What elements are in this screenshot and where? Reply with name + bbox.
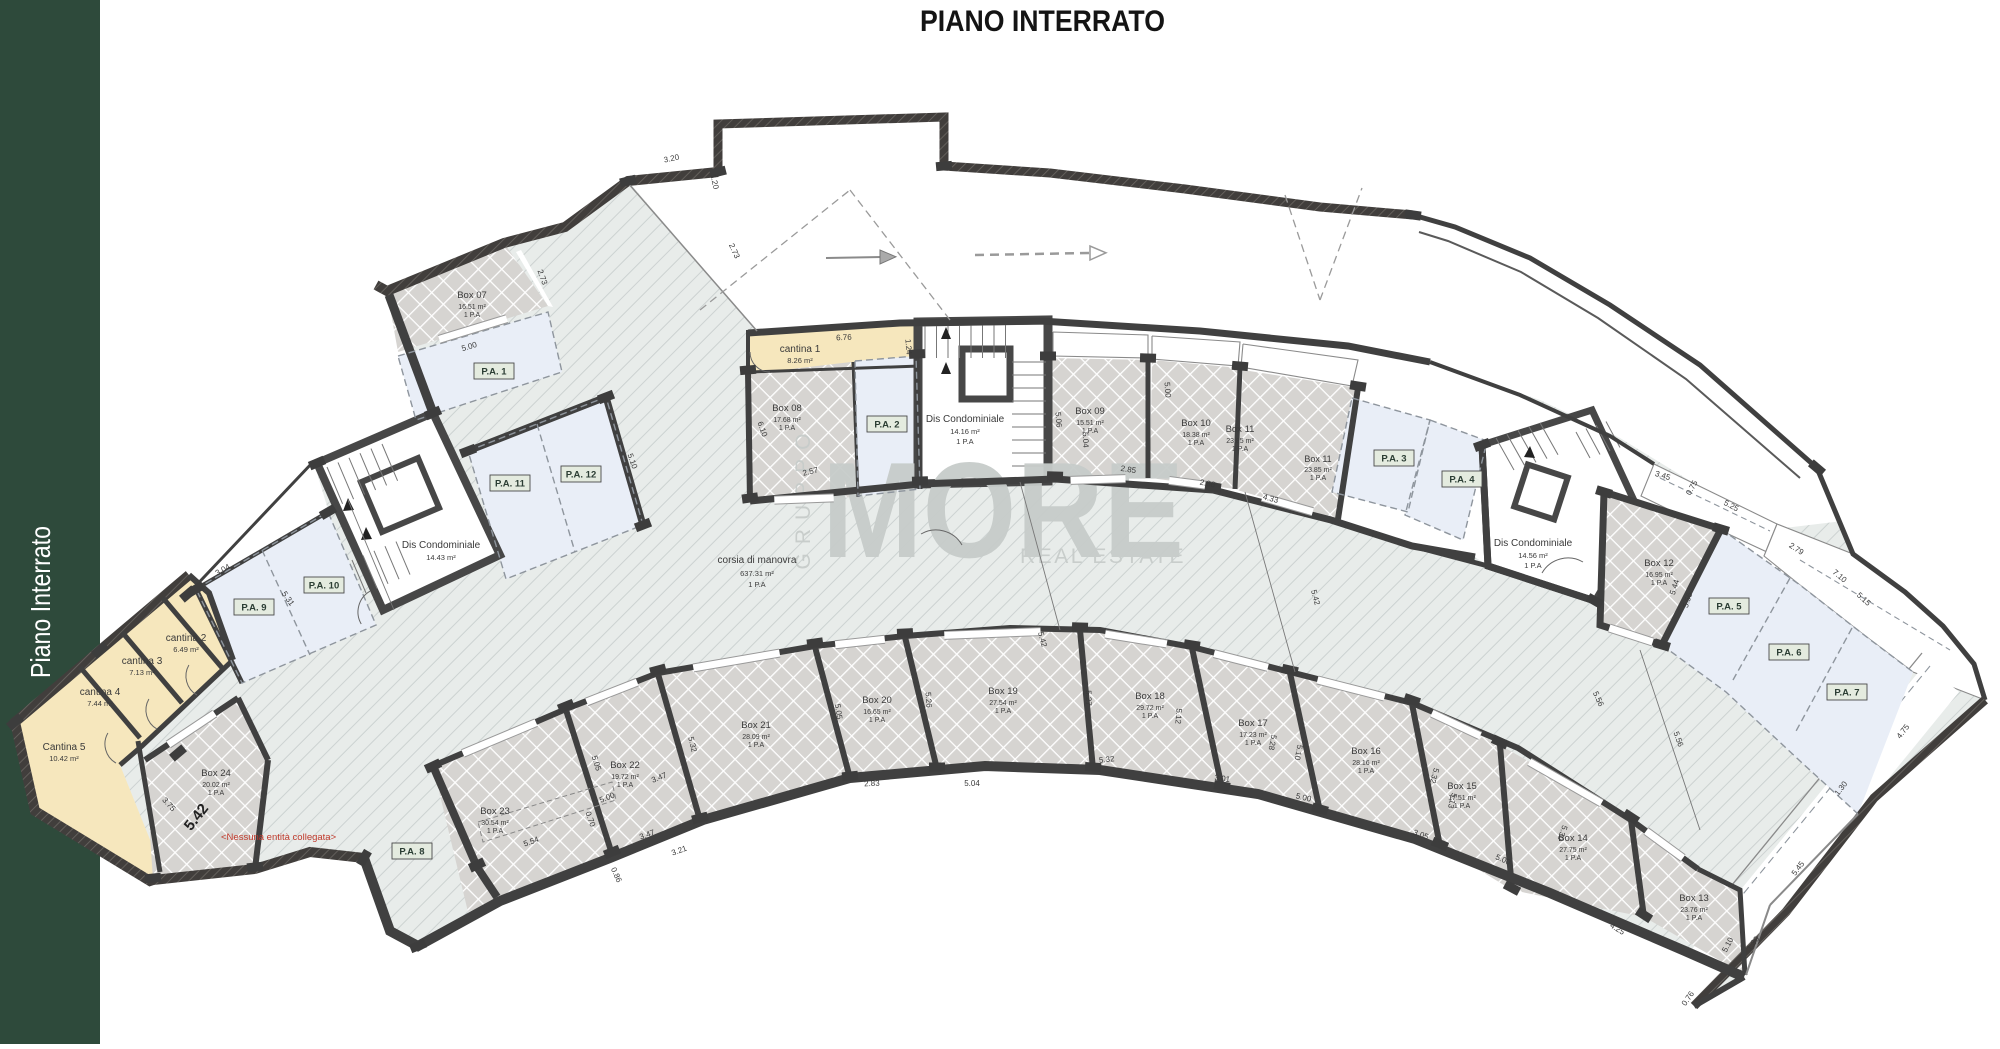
- svg-text:5.27: 5.27: [1084, 690, 1093, 706]
- svg-text:1 P.A: 1 P.A: [1651, 580, 1668, 587]
- svg-text:Box 12: Box 12: [1644, 558, 1674, 569]
- svg-text:1 P.A: 1 P.A: [956, 437, 973, 446]
- svg-text:5.06: 5.06: [1053, 412, 1063, 429]
- svg-text:1 P.A: 1 P.A: [748, 742, 765, 749]
- svg-text:Box 18: Box 18: [1135, 691, 1165, 702]
- svg-text:14.43 m²: 14.43 m²: [426, 553, 456, 562]
- svg-text:1 P.A: 1 P.A: [1524, 561, 1541, 570]
- svg-text:P.A. 11: P.A. 11: [495, 479, 526, 490]
- svg-text:Box 08: Box 08: [772, 403, 802, 414]
- svg-text:16.51 m²: 16.51 m²: [458, 304, 486, 311]
- svg-text:1 P.A: 1 P.A: [487, 828, 504, 835]
- svg-text:Box 16: Box 16: [1351, 746, 1381, 757]
- svg-text:7.44 m²: 7.44 m²: [87, 699, 113, 708]
- svg-text:8.26 m²: 8.26 m²: [787, 356, 813, 365]
- svg-text:23.76 m²: 23.76 m²: [1680, 907, 1708, 914]
- svg-text:P.A. 12: P.A. 12: [566, 470, 596, 481]
- svg-text:1 P.A: 1 P.A: [1358, 768, 1375, 775]
- svg-text:637.31 m²: 637.31 m²: [740, 569, 774, 578]
- svg-text:16.65 m²: 16.65 m²: [863, 709, 891, 716]
- svg-text:cantina 2: cantina 2: [166, 633, 207, 644]
- svg-text:PIANO INTERRATO: PIANO INTERRATO: [920, 5, 1165, 38]
- svg-text:15.51 m²: 15.51 m²: [1076, 420, 1104, 427]
- svg-text:Box 24: Box 24: [201, 768, 231, 779]
- svg-text:27.75 m²: 27.75 m²: [1559, 847, 1587, 854]
- svg-text:6.76: 6.76: [836, 333, 853, 343]
- svg-text:14.56 m²: 14.56 m²: [1518, 551, 1548, 560]
- svg-text:P.A. 3: P.A. 3: [1381, 454, 1406, 465]
- svg-text:1 P.A: 1 P.A: [779, 425, 796, 432]
- svg-text:1 P.A: 1 P.A: [1310, 475, 1327, 482]
- svg-text:Dis Condominiale: Dis Condominiale: [402, 540, 481, 551]
- svg-text:10.42 m²: 10.42 m²: [49, 754, 79, 763]
- svg-text:1.24: 1.24: [903, 339, 913, 356]
- svg-text:2.83: 2.83: [864, 779, 881, 789]
- svg-text:1 P.A: 1 P.A: [464, 312, 481, 319]
- svg-text:1 P.A: 1 P.A: [995, 708, 1012, 715]
- svg-text:17.23 m²: 17.23 m²: [1239, 732, 1267, 739]
- svg-text:28.16 m²: 28.16 m²: [1352, 760, 1380, 767]
- svg-text:Box 11: Box 11: [1304, 454, 1331, 464]
- svg-text:18.38 m²: 18.38 m²: [1182, 432, 1210, 439]
- svg-text:P.A. 5: P.A. 5: [1716, 602, 1742, 613]
- svg-text:cantina 1: cantina 1: [780, 344, 821, 355]
- svg-text:27.54 m²: 27.54 m²: [989, 700, 1017, 707]
- svg-text:cantina 3: cantina 3: [122, 656, 163, 667]
- svg-text:1 P.A: 1 P.A: [1142, 713, 1159, 720]
- svg-text:5.00: 5.00: [1162, 382, 1172, 399]
- svg-text:6.49 m²: 6.49 m²: [173, 645, 199, 654]
- svg-text:23.85 m²: 23.85 m²: [1226, 438, 1254, 445]
- svg-text:5.32: 5.32: [1099, 754, 1116, 765]
- svg-text:Box 22: Box 22: [610, 760, 640, 771]
- svg-text:7.13 m²: 7.13 m²: [129, 668, 155, 677]
- svg-text:P.A. 1: P.A. 1: [481, 367, 507, 378]
- svg-text:Box 19: Box 19: [988, 686, 1018, 697]
- svg-text:Box 23: Box 23: [480, 806, 510, 817]
- svg-text:Box 09: Box 09: [1075, 406, 1105, 417]
- svg-text:1 P.A: 1 P.A: [1565, 855, 1582, 862]
- svg-text:P.A. 10: P.A. 10: [309, 581, 339, 592]
- svg-text:Dis Condominiale: Dis Condominiale: [1494, 538, 1573, 549]
- svg-text:28.09 m²: 28.09 m²: [742, 734, 770, 741]
- svg-text:1 P.A: 1 P.A: [208, 790, 225, 797]
- svg-text:5.04: 5.04: [1081, 432, 1091, 449]
- svg-text:Box 13: Box 13: [1679, 893, 1709, 904]
- svg-text:Box 15: Box 15: [1447, 781, 1477, 792]
- svg-text:1 P.A: 1 P.A: [748, 580, 765, 589]
- svg-text:1 P.A: 1 P.A: [869, 717, 886, 724]
- svg-text:1 P.A: 1 P.A: [1232, 446, 1249, 453]
- svg-text:1 P.A: 1 P.A: [1686, 915, 1703, 922]
- svg-text:20.02 m²: 20.02 m²: [202, 782, 230, 789]
- svg-text:5.26: 5.26: [923, 692, 933, 709]
- svg-text:corsia di manovra: corsia di manovra: [718, 555, 797, 566]
- svg-text:P.A. 9: P.A. 9: [241, 603, 266, 614]
- svg-text:REAL ESTATE: REAL ESTATE: [1020, 545, 1186, 568]
- svg-text:19.72 m²: 19.72 m²: [611, 774, 639, 781]
- svg-text:23.85 m²: 23.85 m²: [1304, 467, 1332, 474]
- svg-text:1 P.A: 1 P.A: [617, 782, 634, 789]
- svg-text:Box 20: Box 20: [862, 695, 892, 706]
- svg-text:5.12: 5.12: [1173, 708, 1183, 725]
- svg-text:16.95 m²: 16.95 m²: [1645, 572, 1673, 579]
- svg-text:Piano Interrato: Piano Interrato: [25, 526, 56, 678]
- svg-text:P.A. 8: P.A. 8: [399, 847, 424, 858]
- svg-text:P.A. 7: P.A. 7: [1834, 688, 1859, 699]
- svg-text:cantina 4: cantina 4: [80, 687, 121, 698]
- svg-text:1 P.A: 1 P.A: [1188, 440, 1205, 447]
- svg-text:30.54 m²: 30.54 m²: [481, 820, 509, 827]
- svg-text:Box 11: Box 11: [1226, 424, 1255, 435]
- svg-text:Box 10: Box 10: [1181, 418, 1211, 429]
- svg-text:Cantina 5: Cantina 5: [43, 742, 86, 753]
- svg-text:1 P.A: 1 P.A: [1245, 740, 1262, 747]
- svg-text:5.04: 5.04: [964, 779, 980, 788]
- svg-text:17.68 m²: 17.68 m²: [773, 417, 801, 424]
- svg-text:P.A. 2: P.A. 2: [874, 420, 899, 431]
- svg-text:14.16 m²: 14.16 m²: [950, 427, 980, 436]
- svg-text:29.72 m²: 29.72 m²: [1136, 705, 1164, 712]
- svg-text:Box 07: Box 07: [457, 290, 487, 301]
- svg-text:Box 21: Box 21: [741, 720, 771, 731]
- svg-text:<Nessuna entità collegata>: <Nessuna entità collegata>: [221, 832, 337, 843]
- svg-text:Box 17: Box 17: [1238, 718, 1268, 729]
- svg-text:P.A. 4: P.A. 4: [1449, 475, 1475, 486]
- svg-text:Dis Condominiale: Dis Condominiale: [926, 414, 1005, 425]
- svg-text:P.A. 6: P.A. 6: [1776, 648, 1801, 659]
